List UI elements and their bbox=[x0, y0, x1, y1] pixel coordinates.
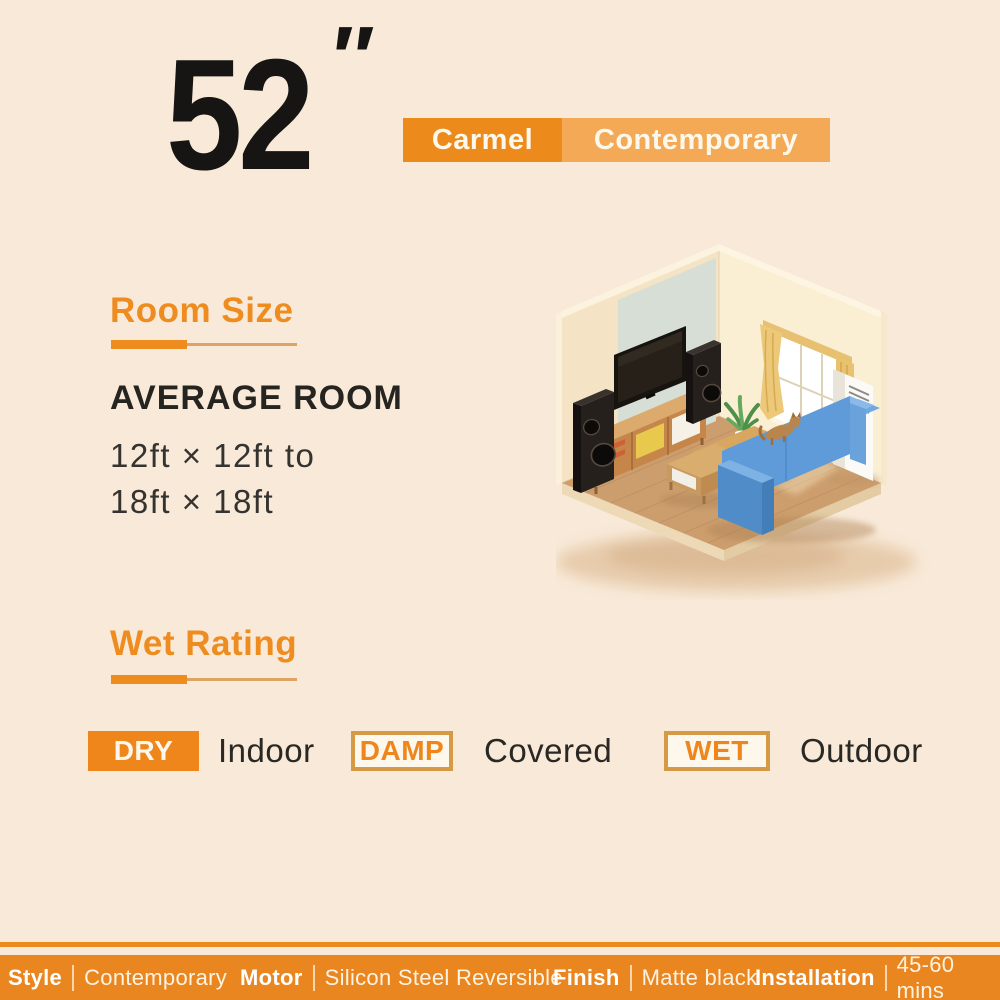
room-size-heading: Room Size bbox=[110, 291, 293, 331]
divider-thick-segment bbox=[111, 675, 187, 684]
living-room-illustration bbox=[556, 200, 992, 600]
spec-separator bbox=[72, 965, 74, 991]
specs-bar: Style Contemporary Motor Silicon Steel R… bbox=[0, 955, 1000, 1000]
section-divider bbox=[111, 675, 297, 684]
spec-item-style: Style Contemporary bbox=[8, 955, 227, 1000]
speaker-left bbox=[573, 389, 619, 493]
spec-label: Finish bbox=[553, 965, 620, 991]
spec-separator bbox=[885, 965, 887, 991]
room-range-line-2: 18ft × 18ft bbox=[110, 483, 274, 521]
wet-badge: WET bbox=[664, 731, 770, 771]
model-badge-bar: Carmel Contemporary bbox=[403, 118, 830, 162]
spec-value: Contemporary bbox=[84, 965, 227, 991]
spec-label: Installation bbox=[755, 965, 875, 991]
dry-badge: DRY bbox=[88, 731, 199, 771]
wet-rating-heading: Wet Rating bbox=[110, 624, 297, 664]
damp-badge: DAMP bbox=[351, 731, 453, 771]
spec-separator bbox=[630, 965, 632, 991]
divider-thick-segment bbox=[111, 340, 187, 349]
spec-value: Matte black bbox=[642, 965, 758, 991]
speaker-right bbox=[686, 340, 723, 424]
room-range-line-1: 12ft × 12ft to bbox=[110, 437, 315, 475]
spec-item-motor: Motor Silicon Steel Reversible bbox=[240, 955, 563, 1000]
spec-value: Silicon Steel Reversible bbox=[325, 965, 563, 991]
specs-bar-top-rule bbox=[0, 942, 1000, 947]
product-infographic: 52 ″ Carmel Contemporary Room Size AVERA… bbox=[0, 0, 1000, 1000]
spec-separator bbox=[313, 965, 315, 991]
model-style-badge: Contemporary bbox=[562, 118, 830, 162]
inch-mark: ″ bbox=[328, 14, 370, 102]
spec-value: 45-60 mins bbox=[897, 952, 1000, 1000]
spec-item-finish: Finish Matte black bbox=[553, 955, 757, 1000]
divider-thin-segment bbox=[187, 678, 297, 681]
average-room-label: AVERAGE ROOM bbox=[110, 379, 403, 418]
fan-size-value: 52 bbox=[166, 36, 310, 194]
model-name-badge: Carmel bbox=[403, 118, 562, 162]
divider-thin-segment bbox=[187, 343, 297, 346]
damp-label: Covered bbox=[484, 731, 612, 771]
spec-label: Style bbox=[8, 965, 62, 991]
section-divider bbox=[111, 340, 297, 349]
wet-label: Outdoor bbox=[800, 731, 923, 771]
dry-label: Indoor bbox=[218, 731, 315, 771]
spec-item-installation: Installation 45-60 mins bbox=[755, 955, 1000, 1000]
spec-label: Motor bbox=[240, 965, 303, 991]
